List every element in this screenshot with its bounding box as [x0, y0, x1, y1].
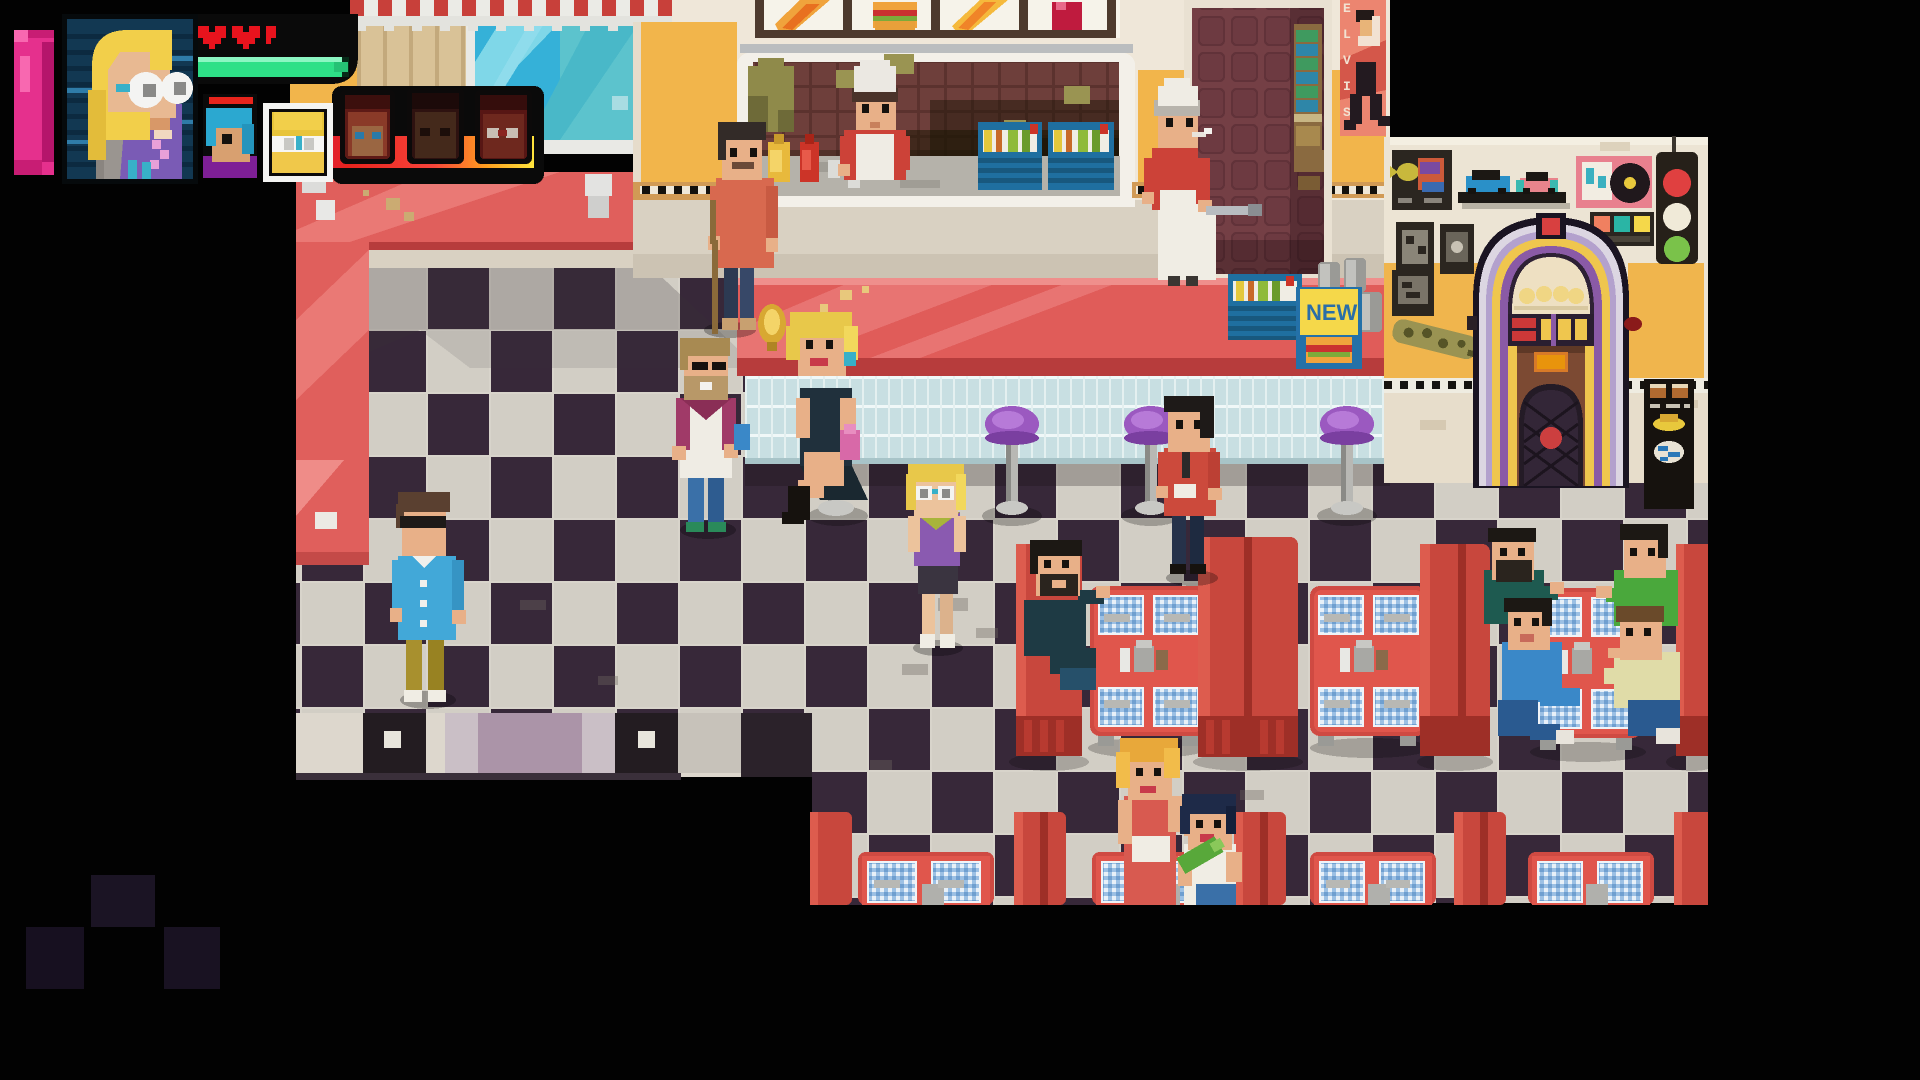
svg-text:S: S	[1343, 105, 1351, 120]
svg-text:I: I	[1343, 79, 1351, 94]
svg-text:NEW: NEW	[1306, 300, 1358, 325]
svg-text:V: V	[1343, 53, 1351, 68]
svg-text:L: L	[1343, 27, 1351, 42]
svg-text:E: E	[1343, 1, 1351, 16]
